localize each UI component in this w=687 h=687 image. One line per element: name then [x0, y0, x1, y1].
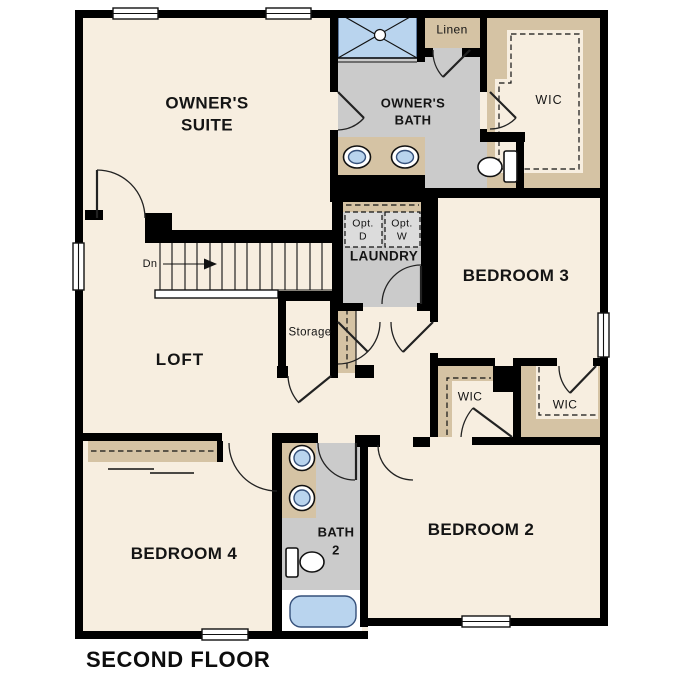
room-label-bath-2: BATH 2: [318, 523, 355, 558]
window: [113, 8, 158, 19]
shower: [338, 13, 417, 62]
window: [598, 313, 609, 357]
room-label-loft: LOFT: [156, 349, 204, 371]
window: [266, 8, 311, 19]
window: [462, 616, 510, 627]
floor-plan: OWNER'S SUITE OWNER'S BATH Linen WIC Opt…: [0, 0, 687, 687]
label-stairs-down: Dn: [143, 257, 158, 271]
room-label-wic-owner: WIC: [535, 92, 562, 108]
bath2-sink: [290, 446, 315, 471]
room-label-owners-suite: OWNER'S SUITE: [165, 92, 248, 136]
room-label-bedroom-3: BEDROOM 3: [463, 265, 570, 287]
bath2-sink: [290, 486, 315, 511]
stair-railing: [155, 290, 278, 298]
shower-drain: [375, 30, 386, 41]
room-label-bedroom-2: BEDROOM 2: [428, 519, 535, 541]
label-opt-dryer: Opt. D: [352, 217, 373, 242]
bathtub: [290, 596, 356, 627]
room-label-owners-bath: OWNER'S BATH: [381, 95, 445, 128]
plan-title: SECOND FLOOR: [86, 647, 270, 673]
room-label-bedroom-4: BEDROOM 4: [131, 543, 238, 565]
owners-sink: [344, 146, 371, 168]
floor-plan-drawing: [0, 0, 687, 687]
room-label-storage: Storage: [288, 326, 331, 341]
owners-sink: [392, 146, 419, 168]
window: [202, 629, 248, 640]
label-opt-washer: Opt. W: [391, 217, 412, 242]
room-label-laundry: LAUNDRY: [350, 247, 418, 264]
window: [73, 243, 84, 290]
room-label-wic-bedroom3: WIC: [553, 397, 578, 412]
room-label-linen: Linen: [436, 22, 467, 37]
room-label-wic-bedroom2: WIC: [458, 389, 483, 404]
